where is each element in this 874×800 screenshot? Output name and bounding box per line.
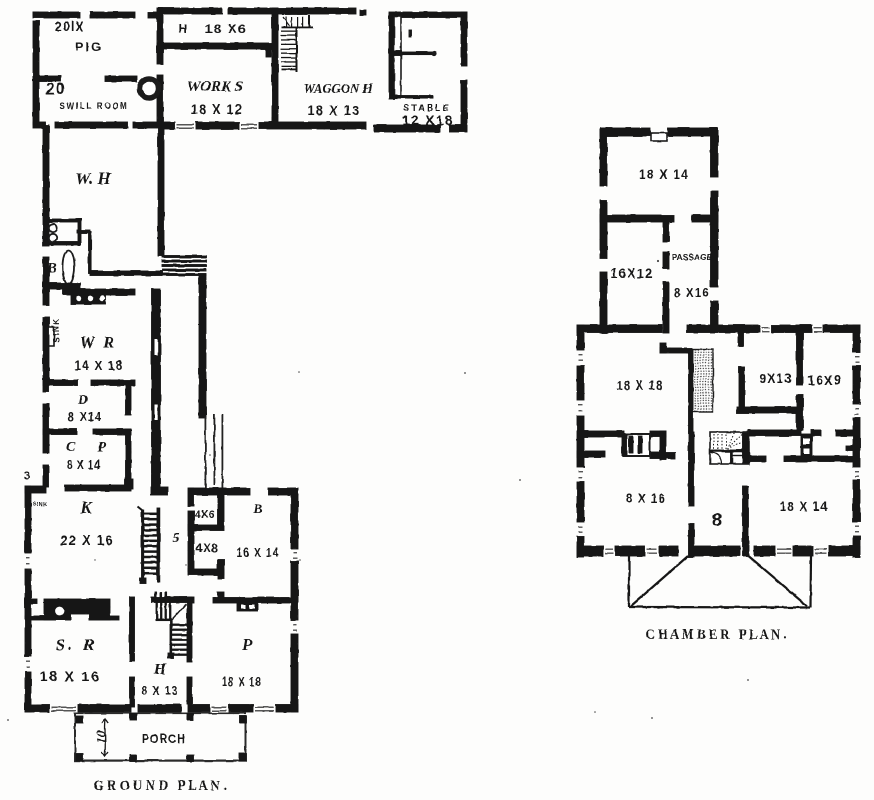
- svg-text:W. H: W. H: [75, 169, 111, 188]
- svg-text:3: 3: [24, 470, 31, 482]
- svg-text:G R O U N D P L A N .: G R O U N D P L A N .: [94, 778, 227, 794]
- svg-text:16X12: 16X12: [611, 266, 654, 281]
- svg-text:B: B: [252, 502, 262, 517]
- svg-text:S. R: S. R: [56, 635, 95, 654]
- svg-text:22 X 16: 22 X 16: [60, 532, 114, 548]
- svg-text:8 X 16: 8 X 16: [626, 490, 666, 506]
- svg-text:18 X 18: 18 X 18: [222, 674, 262, 689]
- svg-text:WAGGON H: WAGGON H: [304, 82, 374, 97]
- svg-text:18 X 18: 18 X 18: [617, 377, 664, 393]
- svg-text:WORK S: WORK S: [187, 79, 243, 95]
- svg-text:B: B: [46, 261, 56, 276]
- svg-text:P: P: [241, 637, 252, 654]
- svg-text:20lX: 20lX: [55, 18, 85, 34]
- svg-text:5: 5: [173, 531, 180, 546]
- svg-text:8 X14: 8 X14: [68, 409, 102, 424]
- svg-text:20: 20: [46, 81, 67, 98]
- svg-text:8: 8: [712, 510, 722, 530]
- svg-text:12 X18: 12 X18: [402, 112, 454, 128]
- svg-text:PIG: PIG: [75, 40, 103, 54]
- svg-text:8 X16: 8 X16: [674, 285, 710, 300]
- svg-text:16X9: 16X9: [808, 373, 843, 388]
- svg-text:4X8: 4X8: [196, 541, 219, 555]
- svg-text:W R: W R: [80, 333, 115, 352]
- svg-text:10: 10: [93, 730, 108, 744]
- svg-text:C P: C P: [66, 440, 106, 455]
- svg-text:16 X 14: 16 X 14: [237, 545, 280, 560]
- svg-text:14 X 18: 14 X 18: [75, 357, 124, 373]
- svg-text:8 X 13: 8 X 13: [142, 683, 179, 698]
- svg-text:C H A M B E R P L A N .: C H A M B E R P L A N .: [646, 627, 787, 643]
- svg-text:18 X6: 18 X6: [205, 22, 247, 36]
- svg-text:18 X 14: 18 X 14: [639, 166, 689, 182]
- svg-text:SINK: SINK: [32, 502, 47, 508]
- svg-text:PORCH: PORCH: [142, 731, 186, 746]
- svg-text:9X13: 9X13: [760, 371, 793, 386]
- svg-text:K: K: [79, 498, 93, 517]
- svg-text:18 X 13: 18 X 13: [308, 102, 361, 118]
- svg-text:PASSAGE: PASSAGE: [672, 253, 714, 262]
- svg-text:8 X 14: 8 X 14: [67, 457, 101, 472]
- svg-text:4X6: 4X6: [195, 509, 216, 521]
- svg-text:H: H: [153, 661, 167, 678]
- svg-text:D: D: [77, 393, 88, 408]
- svg-text:18 X 16: 18 X 16: [40, 668, 101, 684]
- svg-text:18 X 12: 18 X 12: [191, 101, 243, 117]
- svg-text:SWILL ROOM: SWILL ROOM: [60, 101, 129, 111]
- svg-text:H: H: [178, 22, 188, 36]
- svg-text:18 X 14: 18 X 14: [780, 498, 829, 514]
